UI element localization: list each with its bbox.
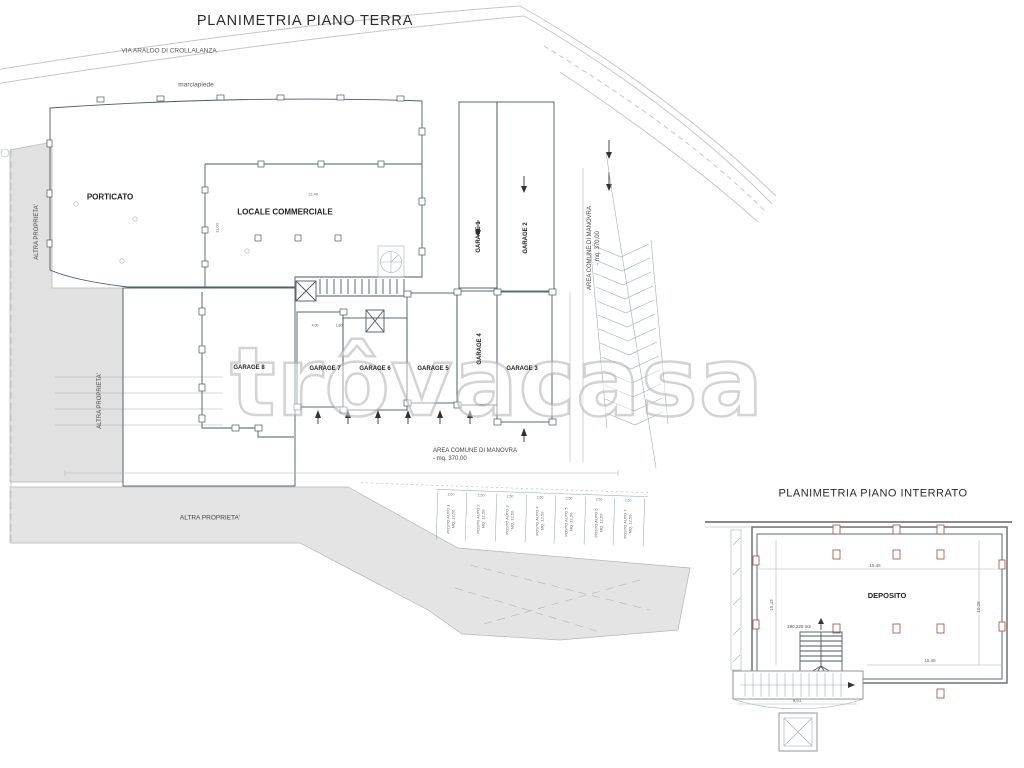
basement-title: PLANIMETRIA PIANO INTERRATO bbox=[778, 487, 967, 502]
parking-spot-label: POSTO AUTO 2 MQ. 12,50 bbox=[476, 504, 487, 533]
maneuver-area-label: AREA COMUNE DI MANOVRA - mq. 370,00 bbox=[433, 447, 517, 463]
sidewalk-label: marciapiede bbox=[178, 82, 213, 91]
ground-building bbox=[47, 95, 425, 287]
dim-label: 1,80 bbox=[336, 324, 343, 329]
maneuver-area-label-vertical: AREA COMUNE DI MANOVRA - mq. 370,00 bbox=[586, 206, 602, 290]
stall-width-dim: 2,50 bbox=[625, 499, 632, 504]
dim-label: 15,45 bbox=[869, 563, 880, 569]
street-curves bbox=[0, 6, 776, 222]
elevator-icon bbox=[296, 281, 316, 301]
dim-label: 15,48 bbox=[924, 658, 935, 664]
garage-1-label: GARAGE 1 bbox=[475, 221, 483, 252]
dim-label: 9,61 bbox=[793, 698, 802, 704]
garage-6-label: GARAGE 6 bbox=[359, 365, 390, 373]
dim-label: 10,28 bbox=[976, 601, 982, 612]
garage-4-label: GARAGE 4 bbox=[476, 333, 484, 364]
stall-width-dim: 2,50 bbox=[566, 497, 573, 502]
parking-spot-label: POSTO AUTO 7 MQ. 12,50 bbox=[623, 509, 634, 538]
stall-width-dim: 2,50 bbox=[448, 493, 455, 498]
parking-spot-label: POSTO AUTO 4 MQ. 12,50 bbox=[535, 506, 546, 535]
stall-width-dim: 2,50 bbox=[537, 496, 544, 501]
basement-elevator-icon bbox=[779, 713, 817, 751]
spiral-stair-icon bbox=[378, 246, 404, 277]
parking-spot-label: POSTO AUTO 1 MQ. 12,50 bbox=[446, 504, 457, 533]
other-property-label: ALTRA PROPRIETA' bbox=[96, 373, 104, 429]
garage-2-label: GARAGE 2 bbox=[522, 222, 530, 253]
locale-commerciale-label: LOCALE COMMERCIALE bbox=[237, 208, 333, 219]
garage-2-region bbox=[497, 102, 554, 291]
garage-3-label: GARAGE 3 bbox=[506, 365, 537, 373]
deposito-area-label: 190,220 m2 bbox=[787, 624, 811, 630]
stall-width-dim: 2,50 bbox=[596, 498, 603, 503]
parking-spot-label: POSTO AUTO 3 MQ. 12,50 bbox=[505, 505, 516, 534]
garage-8-label: GARAGE 8 bbox=[233, 364, 264, 372]
floor-plan-page: trôvacasa PLANIMETRIA PIANO TERRA VIA AR… bbox=[0, 0, 1024, 768]
parking-spot-label: POSTO AUTO 6 MQ. 12,50 bbox=[594, 508, 605, 537]
stall-width-dim: 2,50 bbox=[478, 494, 485, 499]
deposito-label: DEPOSITO bbox=[868, 591, 907, 601]
ground-floor-title: PLANIMETRIA PIANO TERRA bbox=[197, 12, 413, 32]
garage-5-label: GARAGE 5 bbox=[417, 365, 448, 373]
street-label: VIA ARALDO DI CROLLALANZA bbox=[121, 48, 216, 57]
other-property-label: ALTRA PROPRIETA' bbox=[33, 204, 41, 260]
garage-7-label: GARAGE 7 bbox=[309, 365, 340, 373]
dim-label: 12,40 bbox=[308, 191, 318, 196]
dim-label: 4,00 bbox=[312, 324, 319, 329]
trovacasa-watermark: trôvacasa bbox=[230, 328, 764, 438]
garage-1-region bbox=[459, 102, 497, 288]
other-property-label: ALTRA PROPRIETA' bbox=[180, 515, 240, 524]
basement-plan bbox=[705, 522, 1012, 751]
stall-width-dim: 2,50 bbox=[507, 495, 514, 500]
porticato-label: PORTICATO bbox=[87, 193, 133, 204]
dim-label: 15,43 bbox=[769, 599, 775, 610]
parking-spot-label: POSTO AUTO 5 MQ. 12,50 bbox=[564, 507, 575, 536]
dim-label: 11,00 bbox=[214, 223, 219, 233]
